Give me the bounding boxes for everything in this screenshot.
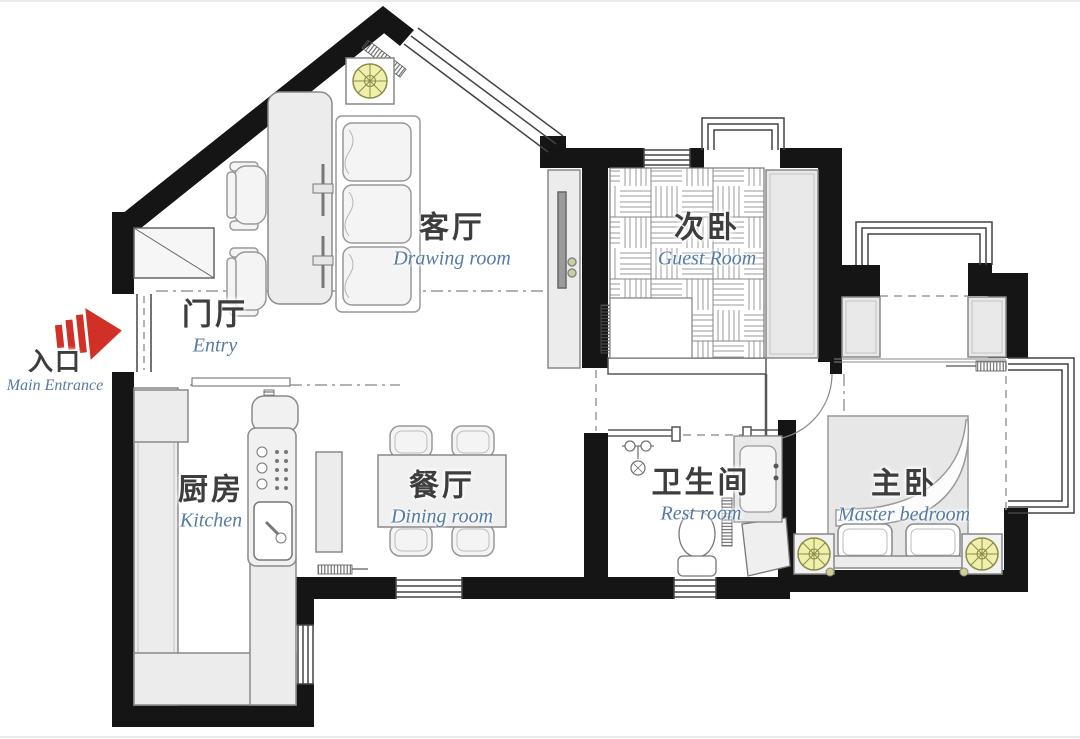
kitchen-side-window: [296, 625, 314, 684]
tv-icon: [558, 192, 566, 288]
wardrobe: [766, 170, 818, 358]
kitchen-corner-unit: [252, 396, 298, 432]
guest-room-door: [766, 374, 832, 442]
floor-plan: 客厅 Drawing room 门厅 Entry 厨房 Kitchen 餐厅 D…: [0, 0, 1080, 739]
master-right-bay-window: [1008, 358, 1074, 513]
ceiling-light-icon: [346, 58, 394, 104]
guest-room-partition: [608, 358, 766, 374]
guest-room-bay-window: [702, 118, 784, 150]
wardrobe: [842, 297, 1006, 357]
dining-table: [378, 455, 506, 527]
headboard: [824, 556, 972, 568]
wall-lamp-icon: [960, 568, 968, 576]
entrance-arrow-icon: [53, 305, 124, 364]
master-top-bay-window: [856, 222, 992, 265]
tv-cabinet: [548, 170, 580, 368]
basin-faucet-icon: [622, 441, 654, 475]
toilet-icon: [678, 511, 716, 576]
entry-furniture: [134, 228, 214, 278]
dining-bottom-window: [396, 577, 462, 599]
guest-room-furniture: [610, 168, 818, 358]
guest-room-top-window: [644, 148, 690, 168]
kitchen-counter-right: [250, 558, 296, 705]
guest-desk: [610, 298, 692, 358]
sideboard: [316, 452, 342, 552]
bathroom-door: [742, 518, 790, 576]
dining-furniture: [378, 426, 506, 556]
washing-machine-icon: [734, 436, 782, 522]
office-chair: [227, 248, 266, 316]
sofa: [336, 116, 420, 312]
bath-bottom-window: [674, 577, 716, 599]
kitchen-sink-icon: [254, 502, 292, 560]
floor-plan-drawing: [0, 0, 1080, 739]
ceiling-light-icon: [798, 538, 830, 570]
living-room-furniture: [227, 58, 580, 368]
office-chair: [227, 162, 266, 230]
wall-lamp-icon: [826, 568, 834, 576]
kitchen-cabinet: [134, 390, 188, 442]
sliding-door-panel: [192, 378, 290, 386]
ceiling-light-icon: [966, 538, 998, 570]
